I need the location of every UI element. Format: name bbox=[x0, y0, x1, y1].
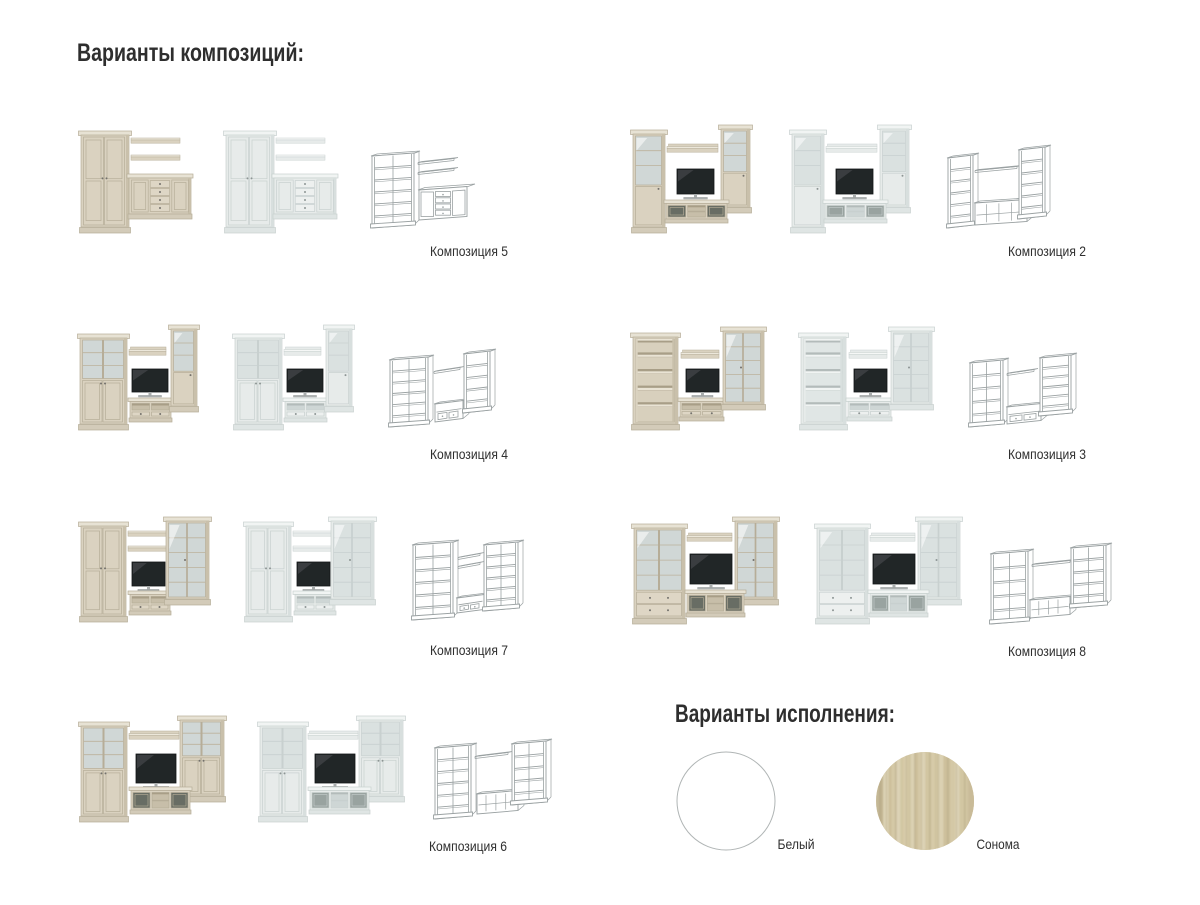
svg-text:Композиция 7: Композиция 7 bbox=[430, 642, 508, 658]
svg-text:Композиция 5: Композиция 5 bbox=[430, 243, 508, 259]
svg-text:Варианты композиций:: Варианты композиций: bbox=[77, 39, 304, 67]
svg-text:Сонома: Сонома bbox=[977, 836, 1020, 852]
svg-text:Композиция 2: Композиция 2 bbox=[1008, 243, 1086, 259]
svg-text:Белый: Белый bbox=[778, 836, 815, 852]
svg-text:Композиция 8: Композиция 8 bbox=[1008, 643, 1086, 659]
svg-text:Композиция 4: Композиция 4 bbox=[430, 446, 508, 462]
svg-text:Варианты исполнения:: Варианты исполнения: bbox=[675, 700, 895, 728]
svg-text:Композиция 6: Композиция 6 bbox=[429, 838, 507, 854]
svg-text:Композиция 3: Композиция 3 bbox=[1008, 446, 1086, 462]
